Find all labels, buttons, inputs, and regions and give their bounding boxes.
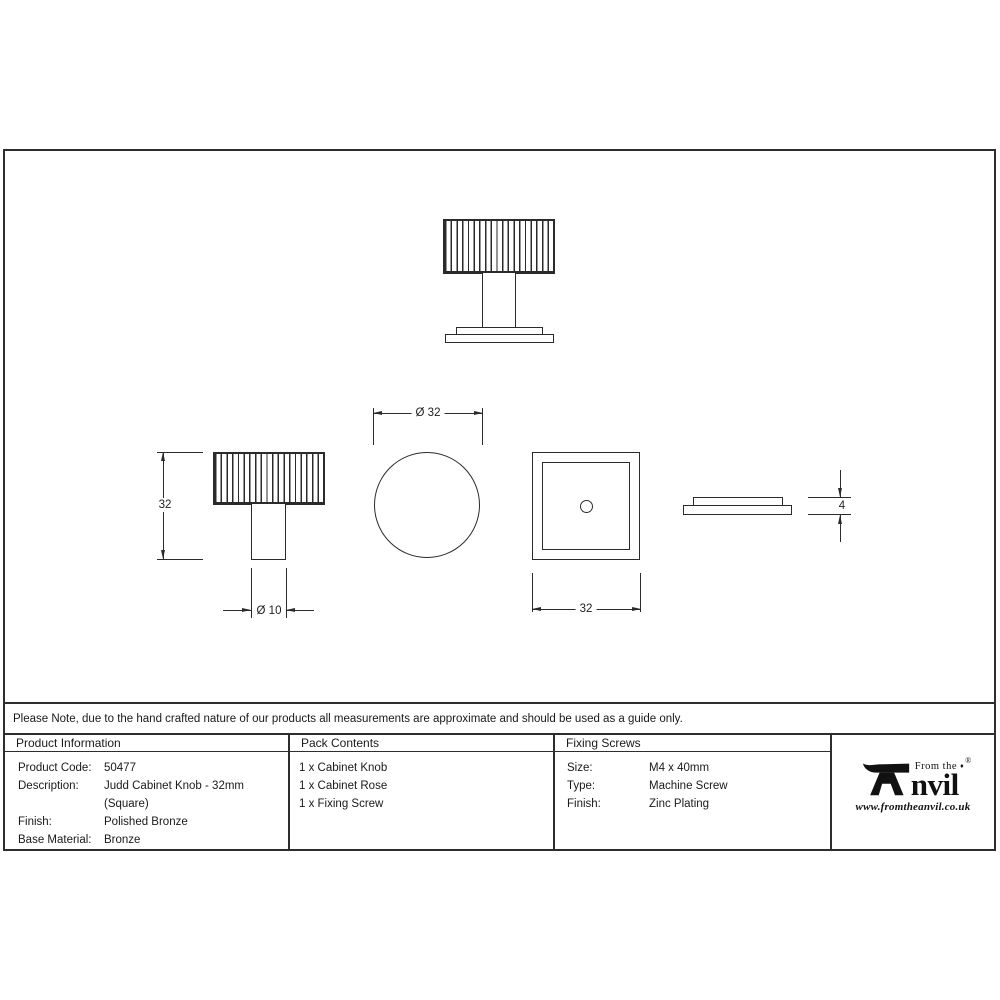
dimension-arrow-left [532, 607, 541, 611]
table-row: Size: M4 x 40mm [555, 759, 830, 777]
row-label: Type: [567, 777, 649, 795]
list-item: 1 x Cabinet Knob [290, 759, 553, 777]
dimension-arrow-up [838, 515, 842, 524]
pack-contents-column: Pack Contents 1 x Cabinet Knob 1 x Cabin… [290, 735, 555, 849]
table-row: Product Code: 50477 [5, 759, 288, 777]
extension-line [808, 514, 851, 515]
assembled-knob-head [443, 219, 555, 274]
dimension-arrow-left [373, 411, 382, 415]
row-label: Finish: [18, 813, 104, 831]
product-information-body: Product Code: 50477 Description: Judd Ca… [5, 752, 288, 849]
diamond-icon: ♦ [960, 762, 964, 770]
dimension-arrow-right [242, 608, 251, 612]
pack-contents-body: 1 x Cabinet Knob 1 x Cabinet Rose 1 x Fi… [290, 752, 553, 849]
row-value: M4 x 40mm [649, 759, 830, 777]
brand-column: From the ♦ nvil ® www.fromtheanvil.co.uk [832, 735, 994, 849]
rose-screw-hole [580, 500, 593, 513]
fixing-screws-column: Fixing Screws Size: M4 x 40mm Type: Mach… [555, 735, 832, 849]
row-label: Base Material: [18, 831, 104, 849]
table-row: Finish: Zinc Plating [555, 795, 830, 813]
dim-label-stem-diameter: Ø 10 [253, 604, 286, 618]
measurement-note-row: Please Note, due to the hand crafted nat… [5, 702, 994, 733]
dim-label-rose-thickness: 4 [835, 499, 849, 513]
row-value: Judd Cabinet Knob - 32mm (Square) [104, 777, 256, 813]
row-value: 50477 [104, 759, 256, 777]
extension-line [157, 559, 203, 560]
pack-contents-header: Pack Contents [290, 735, 553, 752]
anvil-logo-main: From the ♦ nvil ® [862, 760, 964, 798]
logo-name: nvil [911, 772, 959, 798]
drawing-frame: 32 Ø 10 Ø 32 32 [3, 149, 996, 851]
table-row: Type: Machine Screw [555, 777, 830, 795]
dimension-arrow-up [161, 452, 165, 461]
dim-label-rose-width: 32 [576, 602, 597, 616]
row-label: Size: [567, 759, 649, 777]
row-label: Finish: [567, 795, 649, 813]
extension-line [808, 497, 851, 498]
dimension-arrow-right [474, 411, 483, 415]
dimension-arrow-down [161, 550, 165, 559]
table-row: Description: Judd Cabinet Knob - 32mm (S… [5, 777, 288, 813]
table-row: Finish: Polished Bronze [5, 813, 288, 831]
product-information-header: Product Information [5, 735, 288, 752]
measurement-note: Please Note, due to the hand crafted nat… [13, 713, 683, 725]
list-item: 1 x Fixing Screw [290, 795, 553, 813]
row-value: Machine Screw [649, 777, 830, 795]
fixing-screws-body: Size: M4 x 40mm Type: Machine Screw Fini… [555, 752, 830, 849]
knob-side-stem [251, 504, 286, 560]
spec-sheet: 32 Ø 10 Ø 32 32 [0, 0, 1000, 1000]
registered-mark: ® [965, 756, 971, 765]
anvil-logo-text: From the ♦ nvil [911, 761, 964, 798]
dim-label-knob-diameter: Ø 32 [412, 406, 445, 420]
row-value: Polished Bronze [104, 813, 256, 831]
row-label: Description: [18, 777, 104, 813]
dimension-arrow-right [632, 607, 641, 611]
spec-table: Product Information Product Code: 50477 … [5, 733, 994, 849]
drawing-area: 32 Ø 10 Ø 32 32 [5, 151, 994, 702]
assembled-rose-base [445, 334, 554, 343]
row-value: Bronze [104, 831, 256, 849]
knob-side-head [213, 452, 325, 505]
row-value: Zinc Plating [649, 795, 830, 813]
list-item: 1 x Cabinet Rose [290, 777, 553, 795]
knob-top-view [374, 452, 480, 558]
product-information-column: Product Information Product Code: 50477 … [5, 735, 290, 849]
rose-profile-base [683, 505, 792, 515]
row-label: Product Code: [18, 759, 104, 777]
anvil-logo: From the ♦ nvil ® www.fromtheanvil.co.uk [856, 760, 971, 813]
dim-label-knob-height: 32 [155, 498, 176, 512]
dimension-arrow-down [838, 488, 842, 497]
logo-website: www.fromtheanvil.co.uk [856, 801, 971, 813]
table-row: Base Material: Bronze [5, 831, 288, 849]
fixing-screws-header: Fixing Screws [555, 735, 830, 752]
assembled-knob-stem [482, 273, 516, 328]
dimension-arrow-left [286, 608, 295, 612]
anvil-icon [862, 760, 910, 798]
